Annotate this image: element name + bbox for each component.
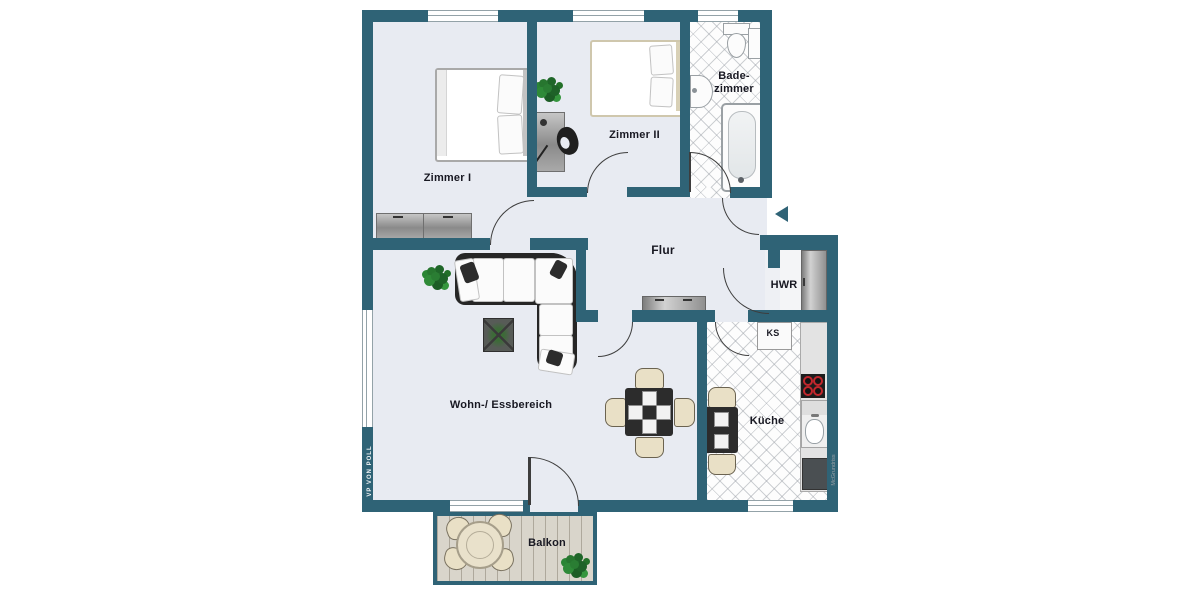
desk-chair-seat xyxy=(559,136,571,150)
floorplan-canvas: Zimmer I Zimmer II Bade- zimmer Flur HWR… xyxy=(0,0,1200,600)
agency-logo: VP VON POLL xyxy=(364,439,376,503)
wall-living-flur-stub xyxy=(576,310,598,322)
bed-duvet-fold xyxy=(437,70,447,156)
door-leaf-balcony xyxy=(528,457,531,505)
hob-burner xyxy=(803,386,813,396)
wall-hwr-left-stub xyxy=(768,250,780,268)
bathtub-basin xyxy=(728,111,756,179)
room-label-zimmer2: Zimmer II xyxy=(592,129,677,142)
wall-zimmer2-bottom xyxy=(537,187,587,197)
appliance-label-ks: KS xyxy=(760,327,786,340)
dining-chair xyxy=(674,398,695,427)
hob-burner xyxy=(803,376,813,386)
place-setting xyxy=(714,412,729,427)
wardrobe-divider xyxy=(423,214,424,239)
window-living-left xyxy=(362,310,373,427)
bathtub-faucet xyxy=(738,177,744,183)
window-zimmer1 xyxy=(428,10,498,22)
wall-zimmer1-zimmer2 xyxy=(527,21,537,197)
bed-zimmer1 xyxy=(435,68,532,162)
sofa xyxy=(455,251,579,375)
sofa-cushion xyxy=(503,258,535,302)
balcony-table xyxy=(456,521,504,569)
badezimmer-line2: zimmer xyxy=(714,83,754,95)
place-setting xyxy=(628,405,643,420)
kitchen-chair xyxy=(708,387,736,408)
wardrobe-handle xyxy=(393,216,403,218)
wall-flur-kitchen xyxy=(632,310,715,322)
kitchen-faucet xyxy=(811,414,819,417)
hob-burner xyxy=(813,386,823,396)
plan-credit: McGrundriss xyxy=(829,442,839,498)
bed-pillow xyxy=(649,76,674,107)
window-zimmer2 xyxy=(573,10,644,22)
dining-table xyxy=(625,388,673,436)
bed-pillow xyxy=(649,44,674,76)
wall-kitchen-left xyxy=(697,322,707,500)
wall-zimmer1-bottom xyxy=(530,238,588,250)
wall-left xyxy=(362,10,373,512)
window-kitchen xyxy=(748,500,793,512)
kitchen-chair xyxy=(708,454,736,475)
wall-bath-bottom xyxy=(730,187,772,198)
window-bathroom xyxy=(698,10,738,22)
bed-pillow xyxy=(497,114,524,154)
window-living-bottom xyxy=(450,500,523,512)
place-setting xyxy=(642,419,657,434)
bed-pillow xyxy=(497,74,525,115)
entrance-arrow-icon xyxy=(775,206,788,222)
hob-burner xyxy=(813,376,823,386)
dining-chair xyxy=(635,368,664,389)
wall-living-flur xyxy=(576,250,586,312)
place-setting xyxy=(714,434,729,449)
sideboard-handle xyxy=(655,299,664,301)
plant-zimmer2 xyxy=(543,84,552,93)
kitchen-sink-unit xyxy=(801,400,828,448)
dining-set xyxy=(605,368,693,456)
sofa-cushion xyxy=(539,304,573,336)
plant-living-room xyxy=(431,272,440,281)
room-label-zimmer1: Zimmer I xyxy=(405,172,490,185)
wardrobe-handle xyxy=(443,216,453,218)
room-label-badezimmer: Bade- zimmer xyxy=(706,70,762,96)
room-label-flur: Flur xyxy=(645,244,681,257)
sideboard-handle xyxy=(683,299,692,301)
place-setting xyxy=(656,405,671,420)
place-setting xyxy=(642,391,657,406)
plant-balcony xyxy=(570,560,579,569)
badezimmer-line1: Bade- xyxy=(718,70,750,82)
coffee-table xyxy=(483,318,514,352)
room-label-hwr: HWR xyxy=(762,279,806,292)
dining-chair xyxy=(635,437,664,458)
bed-zimmer2 xyxy=(590,40,684,117)
desk-lamp xyxy=(540,119,547,126)
kitchen-sink-basin xyxy=(805,419,824,444)
balcony-table-inner xyxy=(466,531,494,559)
kitchen-lower-unit xyxy=(802,458,828,490)
room-label-balkon: Balkon xyxy=(515,537,579,550)
room-label-kueche: Küche xyxy=(742,415,792,428)
door-leaf-bathroom xyxy=(689,152,691,192)
room-label-wohn-essbereich: Wohn-/ Essbereich xyxy=(430,399,572,412)
sink-faucet xyxy=(692,88,697,93)
kitchen-table xyxy=(704,407,738,453)
wardrobe-zimmer1 xyxy=(376,213,472,240)
wall-zimmer1-bottom xyxy=(362,238,490,250)
wall-bath-right xyxy=(760,10,772,198)
dining-chair xyxy=(605,398,626,427)
stove-hob xyxy=(801,374,825,398)
